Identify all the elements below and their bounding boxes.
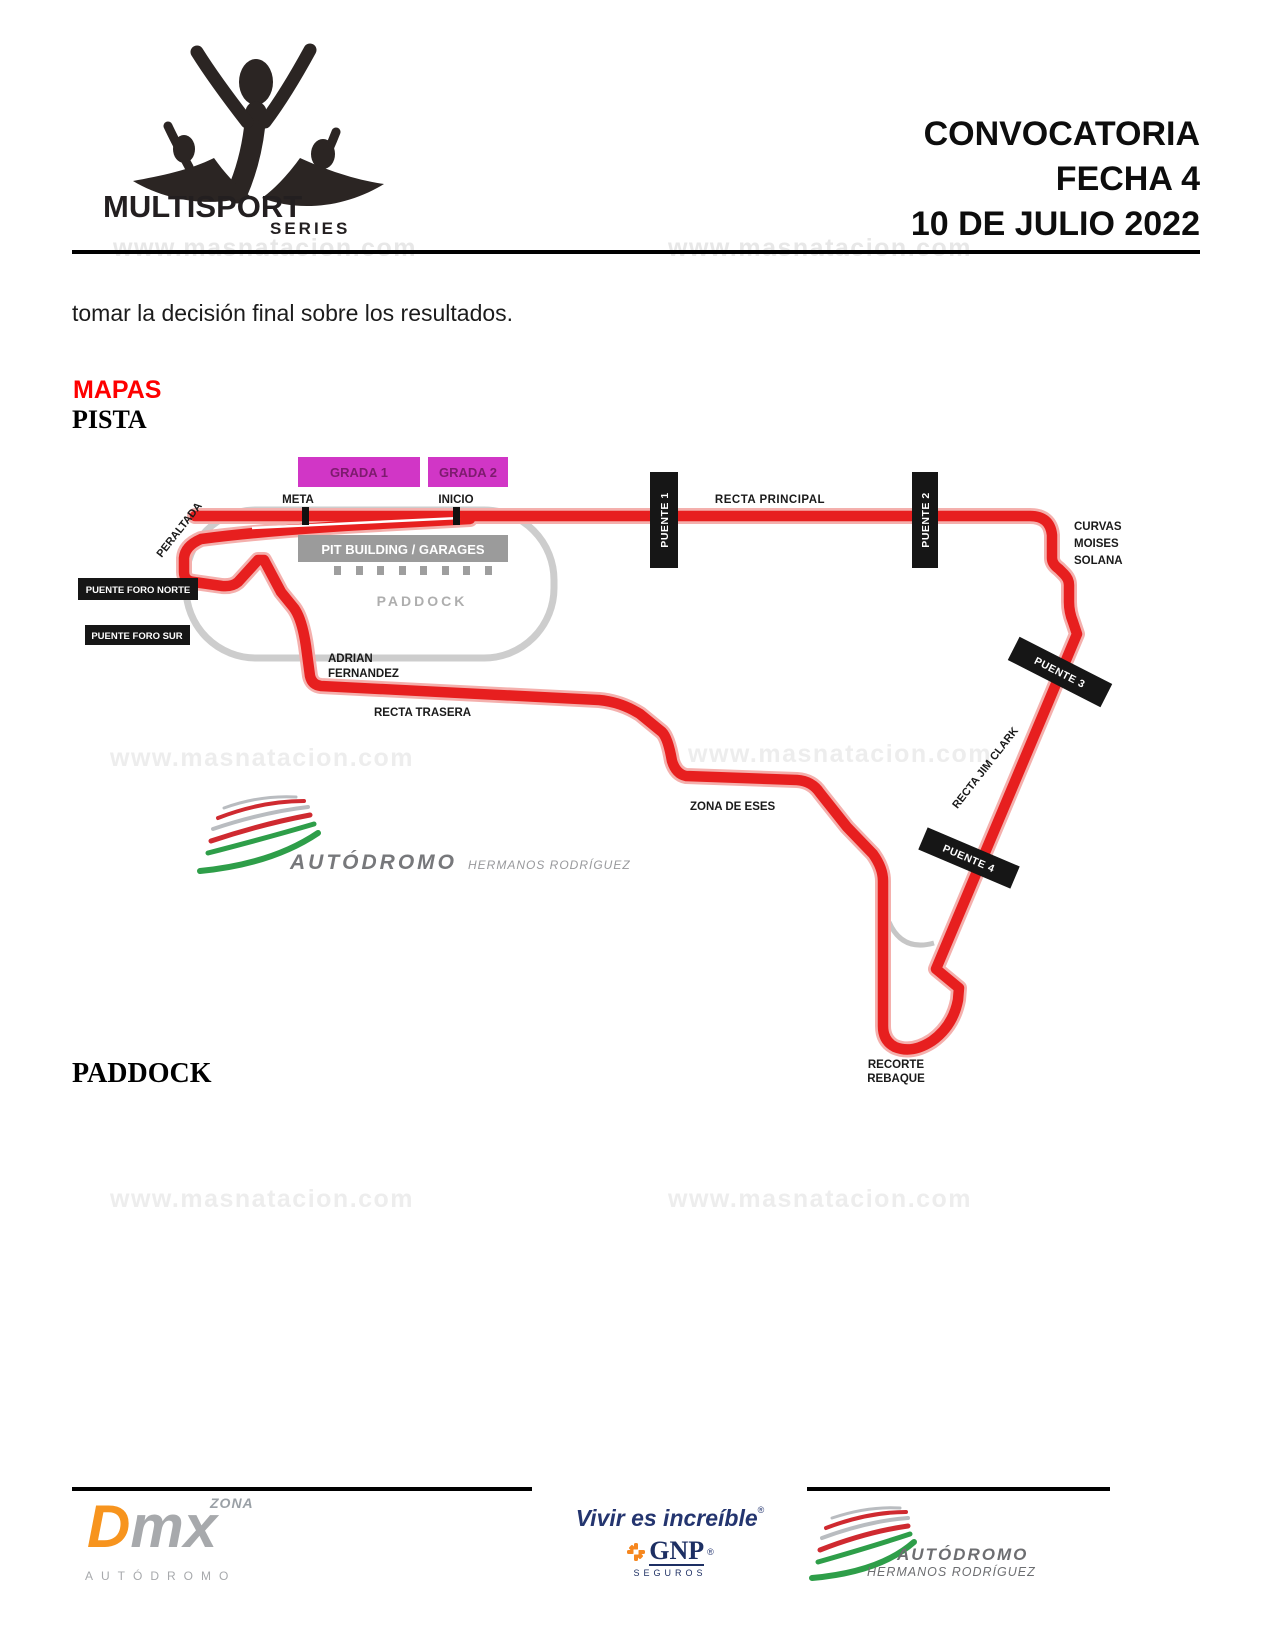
gnp-logo: Vivir es increíble® GNP® SEGUROS: [540, 1505, 800, 1578]
grada1-label: GRADA 1: [330, 465, 388, 480]
footer-divider-right: [807, 1487, 1110, 1491]
inicio-line-marker: [453, 507, 460, 525]
map-autodromo-wordmark: AUTÓDROMO: [289, 850, 457, 874]
ahr-wordmark: AUTÓDROMO: [896, 1545, 1028, 1564]
series-wordmark: SERIES: [270, 219, 350, 238]
track-map: PIT BUILDING / GARAGES PADDOCK GRADA 1 G…: [60, 420, 1140, 1110]
track-path: [184, 516, 1077, 1049]
body-paragraph: tomar la decisión final sobre los result…: [72, 300, 513, 327]
puente3-box: PUENTE 3: [1008, 637, 1112, 707]
dmx-letter-d: D: [87, 1493, 130, 1560]
ahr-logo: AUTÓDROMO HERMANOS RODRÍGUEZ: [805, 1500, 1125, 1595]
curvas-moises-solana-label: CURVAS: [1074, 521, 1122, 533]
meta-line-marker: [302, 507, 309, 525]
zona-de-eses-label: ZONA DE ESES: [690, 801, 776, 813]
paddock-area-label: PADDOCK: [377, 593, 468, 609]
dmx-autodromo-logo: ZONA Dmx AUTÓDROMO: [85, 1495, 295, 1587]
gnp-flower-icon: [626, 1542, 646, 1562]
header-divider: [72, 250, 1200, 254]
dmx-caption: AUTÓDROMO: [85, 1569, 236, 1583]
adrian-fernandez-label: FERNANDEZ: [328, 668, 399, 680]
curvas-moises-solana-label: MOISES: [1074, 538, 1119, 550]
gnp-wordmark: GNP: [649, 1538, 704, 1566]
garage-ticks: [334, 566, 492, 575]
dmx-letters-mx: mx: [130, 1493, 217, 1560]
watermark: www.masnatacion.com: [110, 1185, 414, 1214]
recta-principal-label: RECTA PRINCIPAL: [715, 494, 825, 506]
adrian-fernandez-label: ADRIAN: [328, 653, 373, 665]
ahr-sub-wordmark: HERMANOS RODRÍGUEZ: [867, 1564, 1036, 1579]
gnp-tagline: Vivir es increíble: [576, 1505, 758, 1531]
pit-building-label: PIT BUILDING / GARAGES: [321, 542, 485, 557]
recorte-rebaque-label: REBAQUE: [867, 1073, 925, 1085]
curvas-moises-solana-label: SOLANA: [1074, 555, 1123, 567]
recta-trasera-label: RECTA TRASERA: [374, 707, 471, 719]
puente1-label: PUENTE 1: [659, 492, 671, 547]
recorte-shortcut-line: [889, 922, 934, 945]
document-header: CONVOCATORIA FECHA 4 10 DE JULIO 2022: [911, 112, 1200, 247]
gnp-seguros-label: SEGUROS: [540, 1568, 800, 1578]
map-autodromo-sub: HERMANOS RODRÍGUEZ: [468, 857, 631, 872]
grada2-label: GRADA 2: [439, 465, 497, 480]
multisport-logo: MULTISPORT SERIES: [85, 35, 415, 247]
puente2-label: PUENTE 2: [920, 492, 932, 547]
footer-divider-left: [72, 1487, 532, 1491]
gnp-registered-mark: ®: [758, 1505, 765, 1515]
puente-foro-norte-label: PUENTE FORO NORTE: [86, 585, 191, 596]
header-title: CONVOCATORIA: [911, 112, 1200, 157]
inicio-label: INICIO: [438, 494, 473, 506]
header-date: 10 DE JULIO 2022: [911, 202, 1200, 247]
recorte-rebaque-label: RECORTE: [868, 1059, 925, 1071]
meta-label: META: [282, 494, 314, 506]
pista-heading: PISTA: [72, 405, 147, 435]
mapas-heading: MAPAS: [73, 376, 161, 405]
document-page: www.masnatacion.com www.masnatacion.com …: [0, 0, 1275, 1650]
dmx-wordmark: Dmx: [87, 1497, 217, 1557]
watermark: www.masnatacion.com: [668, 1185, 972, 1214]
gnp-registered-mark: ®: [707, 1547, 714, 1557]
paddock-heading: PADDOCK: [72, 1058, 211, 1090]
multisport-figures-icon: [133, 50, 384, 206]
puente-foro-sur-label: PUENTE FORO SUR: [91, 631, 182, 642]
header-fecha: FECHA 4: [911, 157, 1200, 202]
